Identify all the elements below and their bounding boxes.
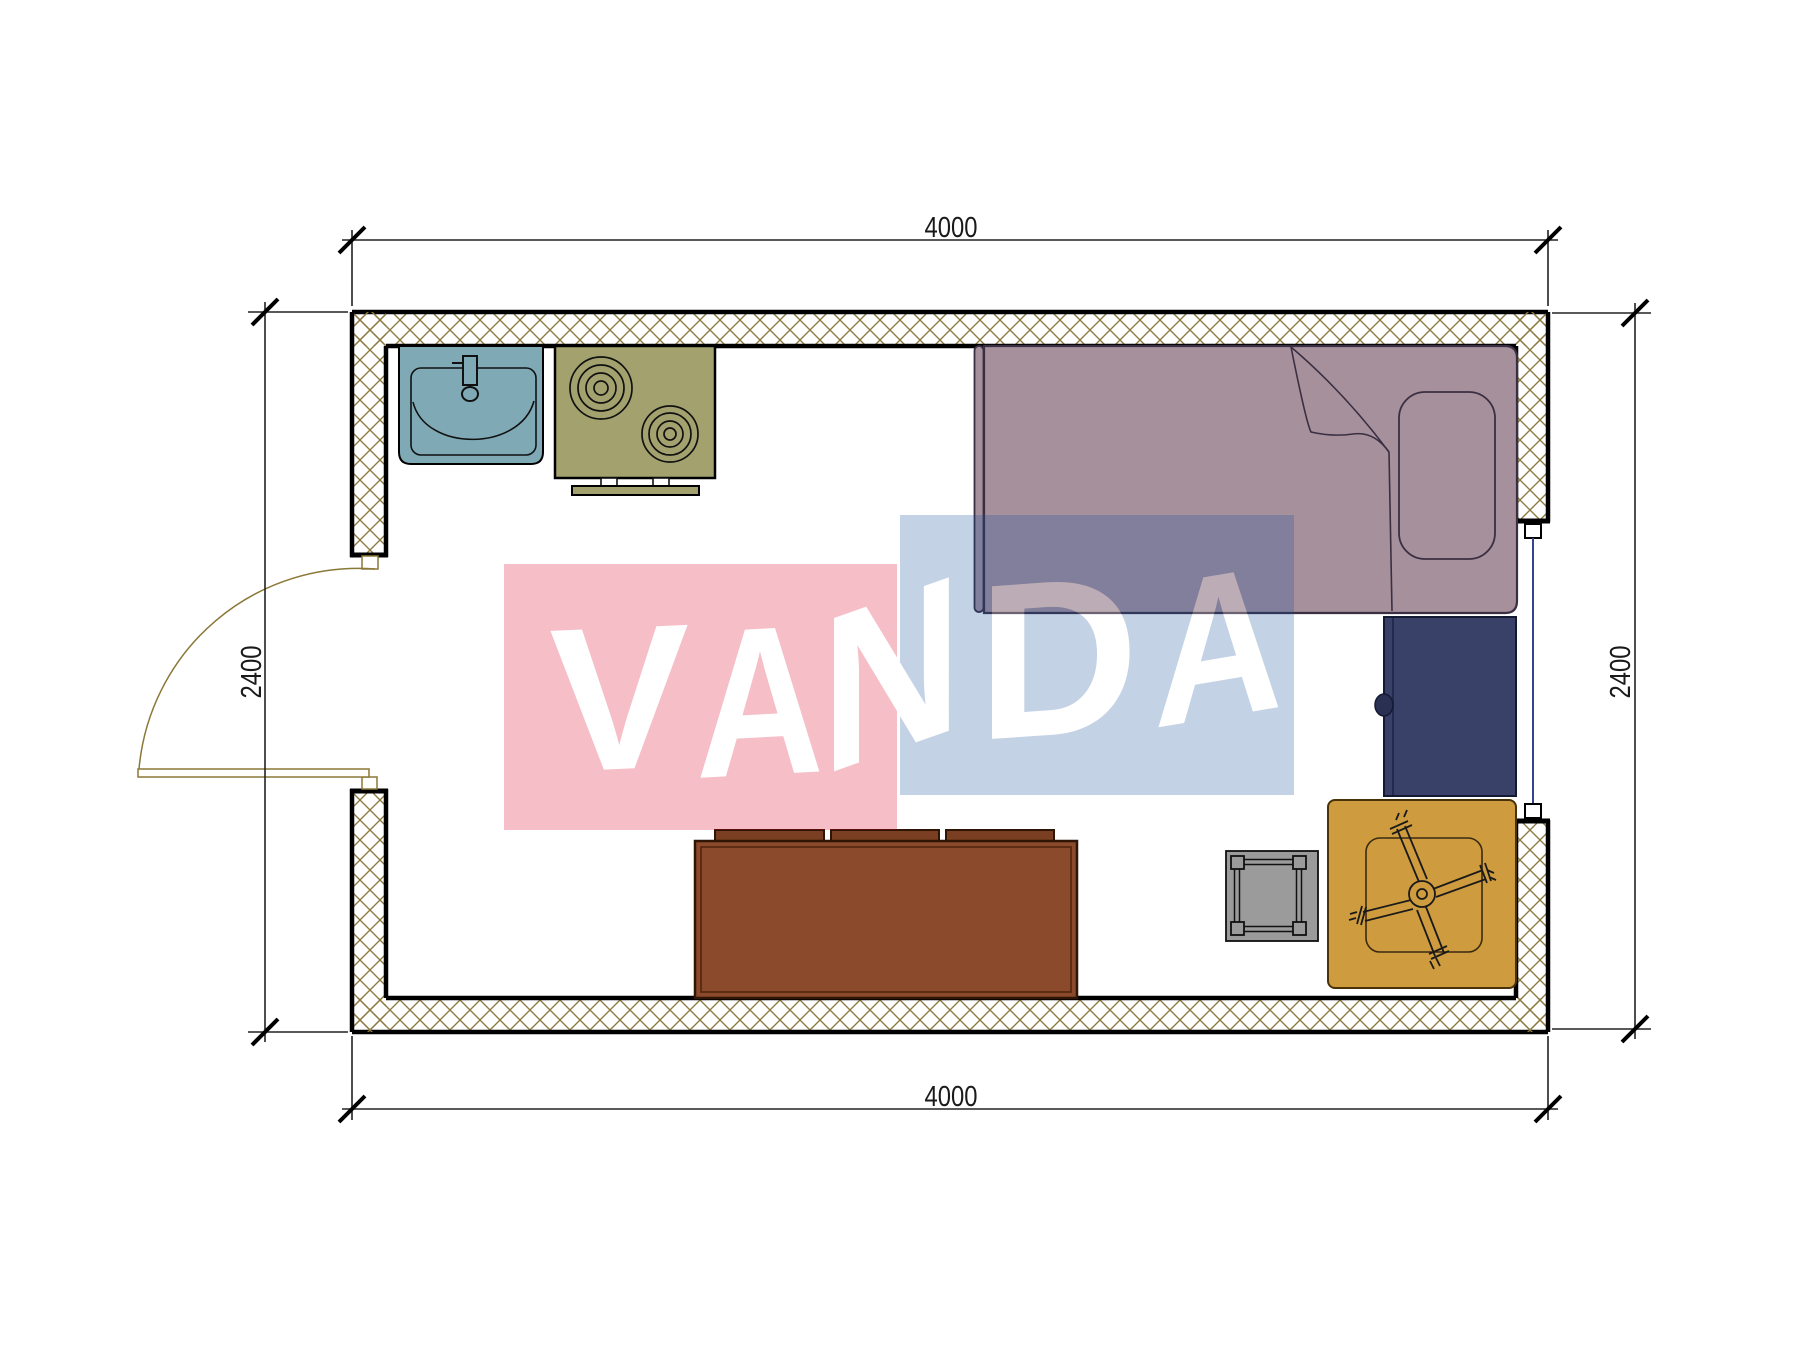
svg-text:V: V — [549, 581, 689, 816]
svg-text:N: N — [821, 524, 962, 823]
svg-text:A: A — [1154, 520, 1283, 773]
svg-text:4000: 4000 — [925, 1081, 978, 1113]
svg-text:4000: 4000 — [925, 212, 978, 244]
svg-text:2400: 2400 — [1605, 646, 1637, 699]
svg-text:D: D — [977, 529, 1139, 788]
svg-text:A: A — [696, 579, 824, 823]
svg-text:2400: 2400 — [236, 646, 268, 699]
